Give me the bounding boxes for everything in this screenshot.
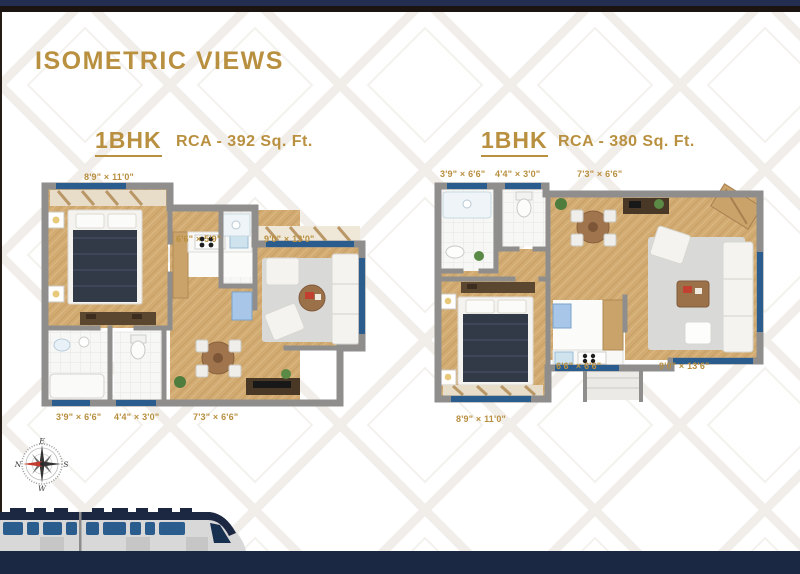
dim-unit2-kitchen: 6'6" × 6'6" [556, 361, 601, 371]
compass-east-label: E [38, 437, 45, 446]
dim-unit1-bedroom: 8'9" × 11'0" [84, 172, 134, 182]
wc [516, 192, 532, 217]
dim-unit1-living: 9'0" × 13'0" [264, 234, 315, 244]
brochure-page: ISOMETRIC VIEWS 1BHK RCA - 392 Sq. Ft. 1… [0, 0, 800, 574]
dim-unit2-dining: 7'3" × 6'6" [577, 169, 622, 179]
unit2-area: RCA - 380 Sq. Ft. [558, 133, 695, 151]
utility-room [223, 214, 250, 236]
compass-rose-icon: E S W N [14, 436, 70, 492]
dim-unit2-bedroom: 8'9" × 11'0" [456, 414, 506, 424]
dim-unit2-wc: 4'4" × 3'0" [495, 169, 540, 179]
bottom-navy-bar [0, 551, 800, 574]
floorplan-1bhk-392 [40, 182, 366, 414]
dim-unit2-living: 9'0" × 13'6" [659, 361, 710, 371]
dim-unit2-bath: 3'9" × 6'6" [440, 169, 485, 179]
top-dark-strip [0, 6, 800, 12]
compass-north-label: N [14, 460, 22, 469]
dim-unit1-foyer: 7'3" × 6'6" [193, 412, 238, 422]
living-room [262, 254, 359, 344]
left-edge-strip [0, 12, 2, 551]
compass-west-label: W [38, 484, 47, 492]
metro-train-icon [0, 505, 252, 553]
wc [131, 335, 146, 359]
unit1-name: 1BHK [95, 127, 162, 157]
unit1-area: RCA - 392 Sq. Ft. [176, 133, 313, 151]
dim-unit1-bath: 3'9" × 6'6" [56, 412, 101, 422]
dim-unit1-wc: 4'4" × 3'0" [114, 412, 159, 422]
dim-unit1-kitchen: 6'6" × 5'9" [176, 234, 221, 244]
floorplan-1bhk-380 [433, 182, 765, 414]
unit2-name: 1BHK [481, 127, 548, 157]
page-title: ISOMETRIC VIEWS [35, 47, 284, 76]
compass-south-label: S [63, 460, 68, 469]
